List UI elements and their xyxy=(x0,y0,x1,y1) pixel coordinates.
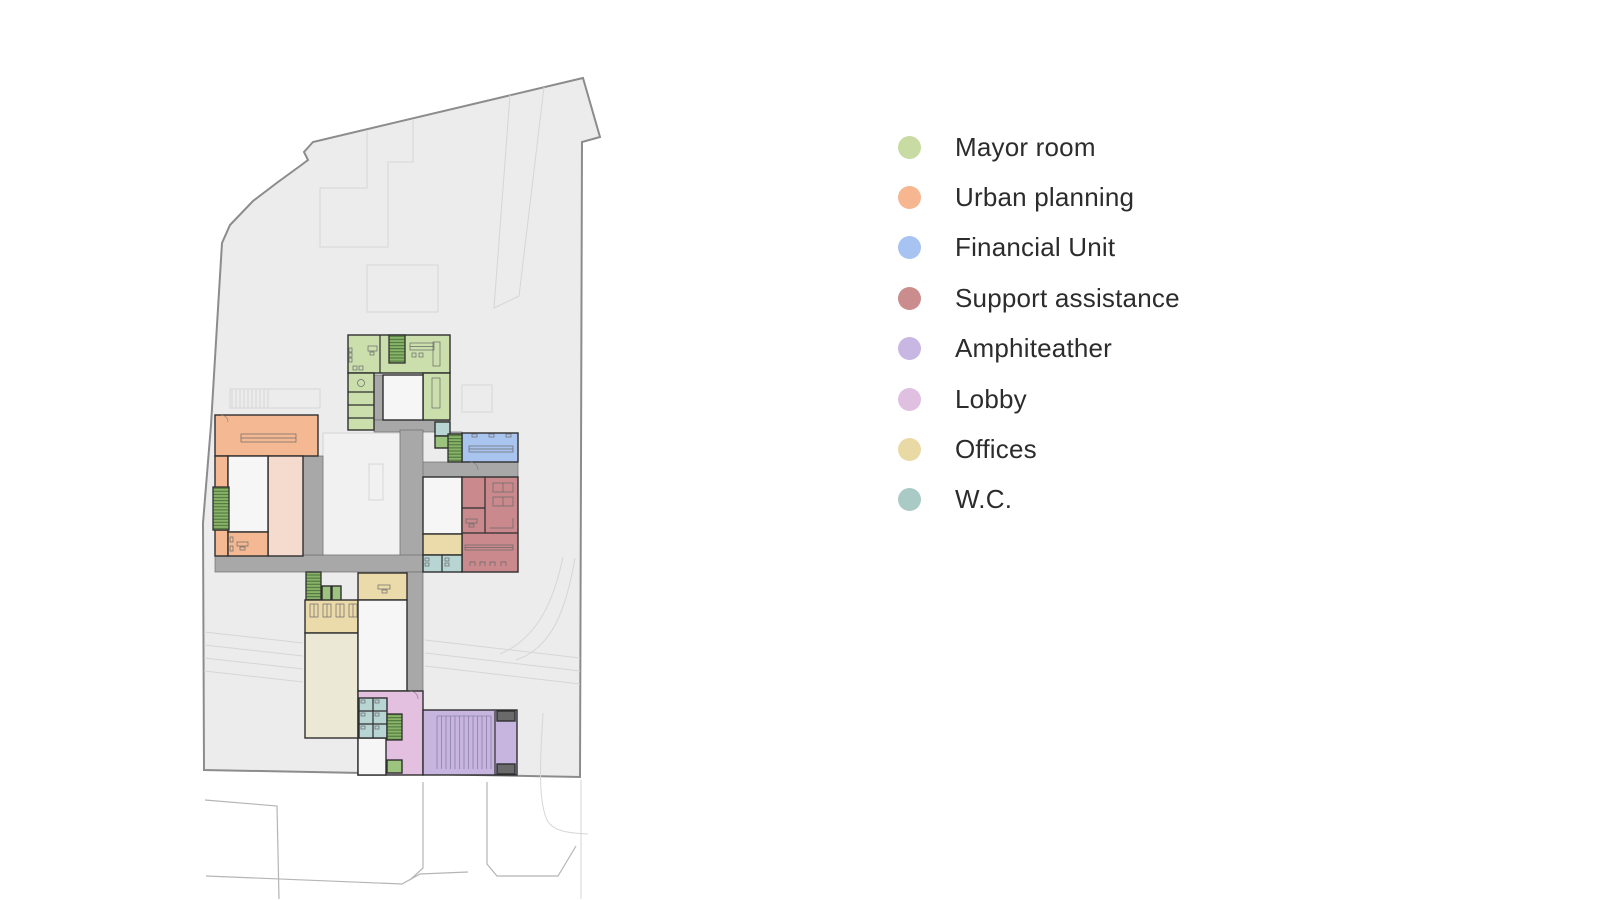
legend-item-mayor-room: Mayor room xyxy=(898,122,1180,172)
zone-lobby xyxy=(358,691,423,775)
floor-plan xyxy=(0,0,640,900)
stairs-icon xyxy=(448,434,462,462)
legend-label-lobby: Lobby xyxy=(955,384,1027,415)
floor-plan-svg xyxy=(0,0,640,900)
legend-label-amphiteather: Amphiteather xyxy=(955,333,1112,364)
legend: Mayor roomUrban planningFinancial UnitSu… xyxy=(898,122,1180,525)
legend-label-financial-unit: Financial Unit xyxy=(955,232,1115,263)
roads xyxy=(205,782,576,899)
legend-item-financial-unit: Financial Unit xyxy=(898,223,1180,273)
legend-item-wc: W.C. xyxy=(898,475,1180,525)
zone-offices-east xyxy=(423,534,462,572)
wc-color-dot xyxy=(898,488,921,511)
zone-urban-planning xyxy=(213,415,318,556)
legend-item-amphiteather: Amphiteather xyxy=(898,324,1180,374)
support-assistance-color-dot xyxy=(898,287,921,310)
central-plaza xyxy=(323,433,400,555)
legend-label-offices: Offices xyxy=(955,434,1037,465)
lobby-color-dot xyxy=(898,388,921,411)
mayor-room-color-dot xyxy=(898,136,921,159)
legend-label-mayor-room: Mayor room xyxy=(955,132,1096,163)
legend-item-urban-planning: Urban planning xyxy=(898,172,1180,222)
legend-item-support-assistance: Support assistance xyxy=(898,273,1180,323)
legend-item-offices: Offices xyxy=(898,424,1180,474)
stairs-icon xyxy=(389,335,405,363)
legend-item-lobby: Lobby xyxy=(898,374,1180,424)
stairs-icon xyxy=(213,487,229,530)
stairs-icon xyxy=(387,714,402,740)
legend-label-support-assistance: Support assistance xyxy=(955,283,1180,314)
financial-unit-color-dot xyxy=(898,236,921,259)
stairs-icon xyxy=(306,572,321,600)
zone-mayor-room xyxy=(348,335,450,430)
zone-amphiteather xyxy=(423,710,517,775)
legend-label-wc: W.C. xyxy=(955,484,1012,515)
urban-planning-color-dot xyxy=(898,186,921,209)
amphiteather-color-dot xyxy=(898,337,921,360)
offices-color-dot xyxy=(898,438,921,461)
legend-label-urban-planning: Urban planning xyxy=(955,182,1134,213)
